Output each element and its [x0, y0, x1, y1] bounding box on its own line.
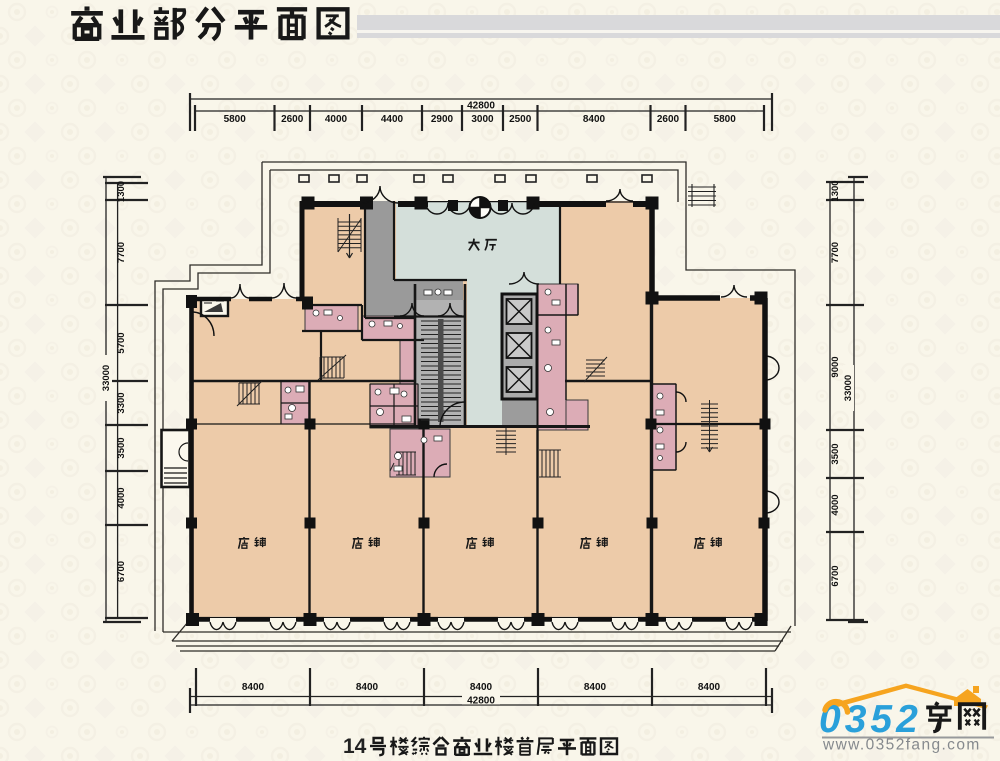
svg-text:14: 14: [343, 735, 367, 758]
svg-text:6700: 6700: [830, 565, 841, 586]
svg-text:42800: 42800: [467, 696, 495, 707]
svg-text:www.0352fang.com: www.0352fang.com: [822, 737, 981, 754]
svg-text:5800: 5800: [224, 114, 247, 125]
svg-text:1300: 1300: [116, 181, 127, 202]
svg-text:3300: 3300: [116, 392, 127, 413]
svg-text:8400: 8400: [470, 682, 493, 693]
svg-text:4400: 4400: [381, 114, 404, 125]
svg-text:9000: 9000: [830, 356, 841, 377]
svg-text:2600: 2600: [657, 114, 680, 125]
svg-text:3000: 3000: [471, 114, 494, 125]
svg-text:7700: 7700: [116, 242, 127, 263]
svg-text:6700: 6700: [116, 561, 127, 582]
svg-text:2900: 2900: [431, 114, 454, 125]
svg-text:42800: 42800: [467, 101, 495, 112]
svg-text:5800: 5800: [714, 114, 737, 125]
svg-text:3500: 3500: [116, 437, 127, 458]
svg-text:8400: 8400: [584, 682, 607, 693]
svg-text:7700: 7700: [830, 242, 841, 263]
svg-text:8400: 8400: [583, 114, 606, 125]
svg-text:8400: 8400: [698, 682, 721, 693]
svg-text:4000: 4000: [116, 487, 127, 508]
svg-text:4000: 4000: [830, 494, 841, 515]
svg-text:2600: 2600: [281, 114, 304, 125]
svg-text:33000: 33000: [843, 375, 854, 401]
svg-text:8400: 8400: [242, 682, 265, 693]
svg-text:1300: 1300: [830, 180, 841, 201]
svg-text:8400: 8400: [356, 682, 379, 693]
svg-text:3500: 3500: [830, 443, 841, 464]
svg-text:4000: 4000: [325, 114, 348, 125]
svg-text:5700: 5700: [116, 332, 127, 353]
svg-text:2500: 2500: [509, 114, 532, 125]
svg-text:33000: 33000: [101, 365, 112, 391]
